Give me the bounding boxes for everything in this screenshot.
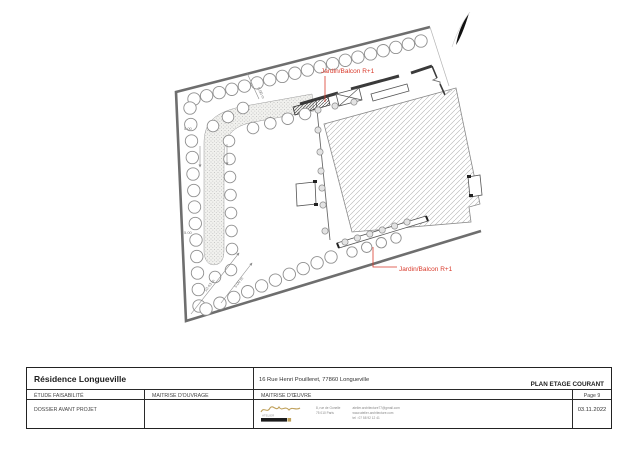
- firm-website: www.atelier-architecture.com: [352, 411, 399, 416]
- title-block-row1: Résidence Longueville 16 Rue Henri Pouil…: [27, 368, 611, 389]
- firm-logo-icon: ATELIER: [258, 403, 304, 423]
- tree-symbol: [222, 111, 234, 123]
- tree-symbol: [362, 242, 372, 252]
- tree-symbol: [228, 291, 240, 303]
- tree-symbol: [391, 233, 401, 243]
- study-label: ÉTUDE FAISABILITÉ: [27, 390, 145, 399]
- tree-symbol: [213, 86, 225, 98]
- tree-symbol: [247, 122, 259, 134]
- tree-symbol: [376, 238, 386, 248]
- tree-symbol: [185, 135, 197, 147]
- tree-symbol: [299, 108, 311, 120]
- tree-symbol: [224, 153, 236, 165]
- column-symbol: [342, 239, 348, 245]
- garden-path: [204, 94, 314, 265]
- label-jardin-balcon-top: Jardin/Balcon R+1: [321, 68, 375, 75]
- date: 03.11.2022: [573, 400, 611, 428]
- tree-symbol: [225, 264, 237, 276]
- tree-symbol: [301, 64, 313, 76]
- firm-logo: ATELIER: [258, 403, 304, 428]
- plan-sheet: 5.00 5.00 5.00 m 10.43 m 5.00 m Jardin/B…: [0, 0, 640, 452]
- building-hatched-roof: [324, 88, 480, 232]
- tree-symbol: [264, 74, 276, 86]
- phase-label: DOSSIER AVANT PROJET: [27, 400, 145, 428]
- firm-logo-text: ATELIER: [262, 414, 275, 418]
- tree-symbol: [200, 90, 212, 102]
- title-block: Résidence Longueville 16 Rue Henri Pouil…: [26, 367, 612, 429]
- page-number: Page 9: [573, 390, 611, 399]
- tree-symbol: [276, 70, 288, 82]
- tree-symbol: [189, 217, 201, 229]
- tree-symbol: [283, 268, 295, 280]
- tree-symbol: [265, 118, 277, 130]
- tree-symbol: [415, 35, 427, 47]
- column-symbol: [320, 202, 326, 208]
- dim-left-upper: 5.00: [184, 126, 193, 131]
- tree-symbol: [311, 257, 323, 269]
- tree-symbol: [402, 38, 414, 50]
- firm-info: ATELIER 8, rue de Gonelle 75 010 Paris a…: [254, 400, 573, 428]
- column-symbol: [317, 149, 323, 155]
- column-symbol: [354, 235, 360, 241]
- tree-symbol: [225, 207, 237, 219]
- tree-symbol: [184, 102, 196, 114]
- tree-symbol: [364, 48, 376, 60]
- column-symbol: [318, 168, 324, 174]
- column-symbol: [379, 227, 385, 233]
- title-block-row2: ÉTUDE FAISABILITÉ MAITRISE D'OUVRAGE MAI…: [27, 389, 611, 399]
- owner-label: MAITRISE D'OUVRAGE: [145, 390, 254, 399]
- tree-symbol: [226, 83, 238, 95]
- dim-top-diagonal: 5.00 m: [256, 86, 266, 100]
- firm-contact: atelier.architecture77@gmail.com www.ate…: [352, 403, 399, 420]
- tree-symbol: [289, 67, 301, 79]
- label-jardin-balcon-bottom: Jardin/Balcon R+1: [399, 266, 453, 273]
- column-symbol: [332, 103, 338, 109]
- tree-symbol: [223, 135, 235, 147]
- tree-symbol: [188, 184, 200, 196]
- firm-phone: tel : 07 58 92 12 41: [352, 416, 399, 421]
- project-name: Résidence Longueville: [27, 368, 254, 389]
- tree-symbol: [224, 171, 236, 183]
- tree-symbol: [186, 151, 198, 163]
- tree-symbol: [352, 51, 364, 63]
- tree-symbol: [377, 45, 389, 57]
- tree-symbol: [225, 189, 237, 201]
- tree-symbol: [207, 120, 219, 132]
- column-symbol: [351, 99, 357, 105]
- tree-symbol: [255, 280, 267, 292]
- shaft-symbol: [336, 88, 362, 106]
- tree-symbol: [242, 286, 254, 298]
- tree-symbol: [325, 251, 337, 263]
- tree-symbol: [191, 250, 203, 262]
- column-symbol: [404, 219, 410, 225]
- firm-address: 8, rue de Gonelle 75 010 Paris: [316, 403, 340, 416]
- dim-left-lower: 5.00: [184, 230, 193, 235]
- tree-symbol: [200, 303, 212, 315]
- column-symbol: [322, 228, 328, 234]
- column-symbol: [392, 223, 398, 229]
- dim-corner-short: 5.00 m: [233, 275, 245, 288]
- tree-symbol: [297, 262, 309, 274]
- tree-symbol: [187, 168, 199, 180]
- tree-symbol: [282, 113, 294, 125]
- project-address: 16 Rue Henri Pouilleret, 77860 Longuevil…: [254, 368, 424, 389]
- firm-address-line2: 75 010 Paris: [316, 411, 340, 416]
- tree-symbol: [269, 274, 281, 286]
- column-symbol: [367, 231, 373, 237]
- column-symbol: [319, 185, 325, 191]
- tree-symbol: [347, 247, 357, 257]
- tree-symbol: [188, 201, 200, 213]
- tree-symbol: [237, 102, 249, 114]
- tree-symbol: [339, 54, 351, 66]
- left-door: [296, 180, 318, 206]
- column-symbol: [315, 107, 321, 113]
- tree-symbol: [226, 243, 238, 255]
- tree-symbol: [190, 234, 202, 246]
- architect-label: MAITRISE D'ŒUVRE: [254, 390, 573, 399]
- title-block-row3: DOSSIER AVANT PROJET ATELIER 8, rue de G…: [27, 399, 611, 428]
- tree-symbol: [238, 80, 250, 92]
- drawing-title: PLAN ETAGE COURANT: [424, 368, 611, 389]
- boundary-continuation: [430, 27, 449, 86]
- empty-cell: [145, 400, 254, 428]
- tree-symbol: [191, 267, 203, 279]
- tree-symbol: [226, 225, 238, 237]
- north-arrow-icon: [452, 12, 470, 47]
- tree-symbol: [390, 41, 402, 53]
- column-symbol: [315, 127, 321, 133]
- deck-bench: [371, 84, 409, 101]
